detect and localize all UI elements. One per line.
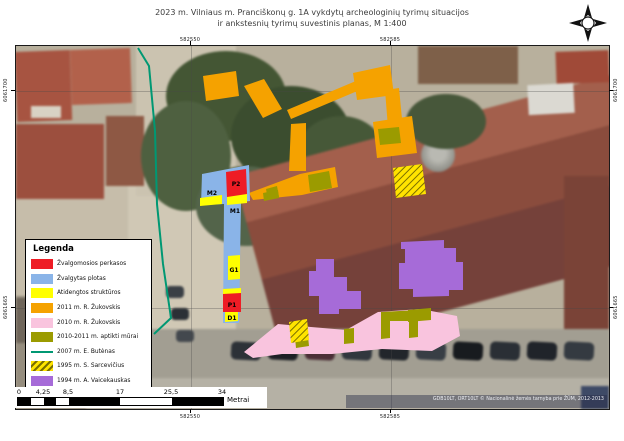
legend-swatch-teal-line (31, 351, 53, 353)
label-m2: M2 (207, 190, 217, 197)
legend-swatch-red (31, 259, 53, 269)
legend-item: Atidengtos struktūros (31, 286, 151, 301)
coord-right-bottom: 6061665 (613, 285, 619, 329)
compass-west-arrow (569, 19, 583, 27)
compass-east-arrow (593, 19, 607, 27)
compass-rose-icon (566, 2, 610, 44)
legend-item: 2007 m. E. Butėnas (31, 345, 151, 360)
legend-swatch-purple (31, 376, 53, 386)
legend-title: Legenda (33, 244, 151, 254)
title-line1: 2023 m. Vilniaus m. Pranciškonų g. 1A vy… (0, 8, 624, 19)
legend-label: 2010-2011 m. aptikti mūrai (57, 334, 138, 340)
compass-south-arrow (584, 28, 592, 42)
scale-tick: 0 (17, 388, 21, 396)
legend-item: 2011 m. R. Žukovskis (31, 301, 151, 316)
label-d1: D1 (227, 315, 236, 322)
label-trench-p1: P1 (228, 302, 237, 309)
scale-bar-segments (17, 397, 224, 406)
scale-bar: 0 4,25 8,5 17 25,5 34 Metrai (15, 387, 267, 408)
scale-tick: 8,5 (63, 388, 73, 396)
legend-swatch-olive (31, 332, 53, 342)
legend-item: 2010-2011 m. aptikti mūrai (31, 330, 151, 345)
legend-item: Žvalgytas plotas (31, 272, 151, 287)
coord-bottom-right: 582585 (368, 414, 412, 420)
title-line2: ir ankstesnių tyrimų suvestinis planas, … (0, 19, 624, 30)
compass-north-arrow (584, 4, 592, 18)
legend: Legenda Žvalgomosios perkasos Žvalgytas … (25, 239, 152, 397)
scale-tick: 4,25 (36, 388, 50, 396)
legend-swatch-yellow (31, 288, 53, 298)
area-1995-sarcevicius-upper (393, 164, 426, 198)
label-g1: G1 (229, 267, 238, 274)
coord-left-top: 6061700 (3, 68, 9, 112)
area-1995-sarcevicius-lower (289, 319, 309, 343)
label-trench-p2: P2 (232, 181, 241, 188)
legend-swatch-hatch (31, 361, 53, 371)
legend-item: 1995 m. S. Sarcevičius (31, 359, 151, 374)
legend-label: Atidengtos struktūros (57, 290, 121, 296)
legend-label: 1995 m. S. Sarcevičius (57, 363, 124, 369)
ortho-attribution: GDB10LT, ORT10LT © Nacionalinė žemės tar… (346, 395, 607, 408)
area-1994-vaicekauskas (309, 240, 463, 314)
coord-right-top: 6061700 (613, 68, 619, 112)
legend-label: 2010 m. R. Žukovskis (57, 320, 120, 326)
legend-item: 2010 m. R. Žukovskis (31, 315, 151, 330)
legend-swatch-orange (31, 303, 53, 313)
scale-tick: 25,5 (164, 388, 178, 396)
label-m1: M1 (230, 208, 240, 215)
legend-swatch-pink (31, 318, 53, 328)
legend-label: 2007 m. E. Butėnas (57, 349, 115, 355)
scale-tick: 34 (218, 388, 226, 396)
scale-unit: Metrai (227, 396, 249, 404)
legend-item: Žvalgomosios perkasos (31, 257, 151, 272)
legend-label: Žvalgomosios perkasos (57, 261, 126, 267)
legend-swatch-blue (31, 274, 53, 284)
legend-label: Žvalgytas plotas (57, 276, 106, 282)
coord-left-bottom: 6061665 (3, 285, 9, 329)
coord-bottom-left: 582550 (168, 414, 212, 420)
page-title: 2023 m. Vilniaus m. Pranciškonų g. 1A vy… (0, 8, 624, 30)
scale-tick: 17 (116, 388, 124, 396)
legend-label: 1994 m. A. Vaicekauskas (57, 378, 130, 384)
legend-label: 2011 m. R. Žukovskis (57, 305, 120, 311)
